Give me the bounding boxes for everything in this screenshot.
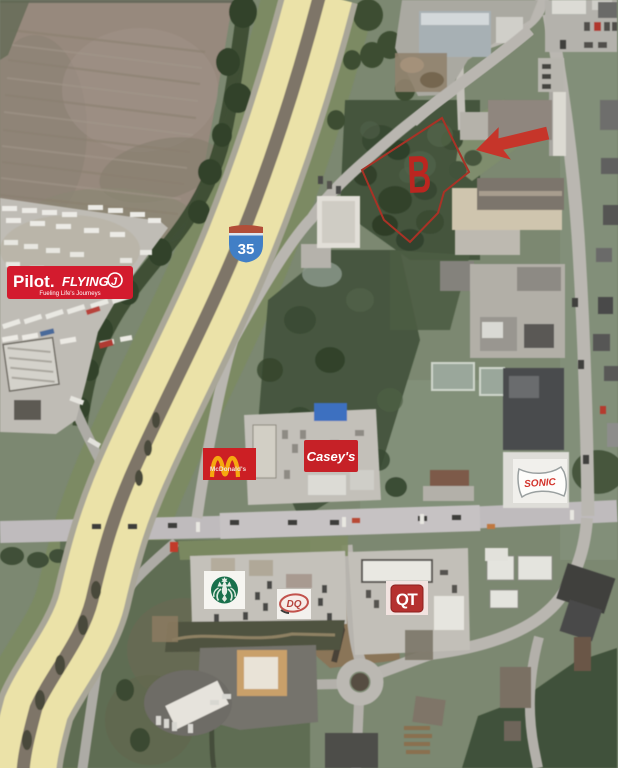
svg-text:FLYING: FLYING: [62, 274, 109, 289]
svg-text:Pilot.: Pilot.: [13, 272, 55, 291]
svg-text:35: 35: [238, 241, 255, 258]
svg-text:Fueling Life's Journeys: Fueling Life's Journeys: [39, 291, 100, 297]
svg-text:QT: QT: [396, 590, 419, 609]
svg-text:McDonald's: McDonald's: [210, 466, 247, 473]
svg-text:J: J: [111, 276, 118, 288]
svg-text:Casey's: Casey's: [307, 449, 356, 464]
svg-text:B: B: [406, 145, 432, 205]
svg-text:SONIC: SONIC: [524, 477, 557, 490]
svg-text:DQ: DQ: [287, 599, 302, 610]
